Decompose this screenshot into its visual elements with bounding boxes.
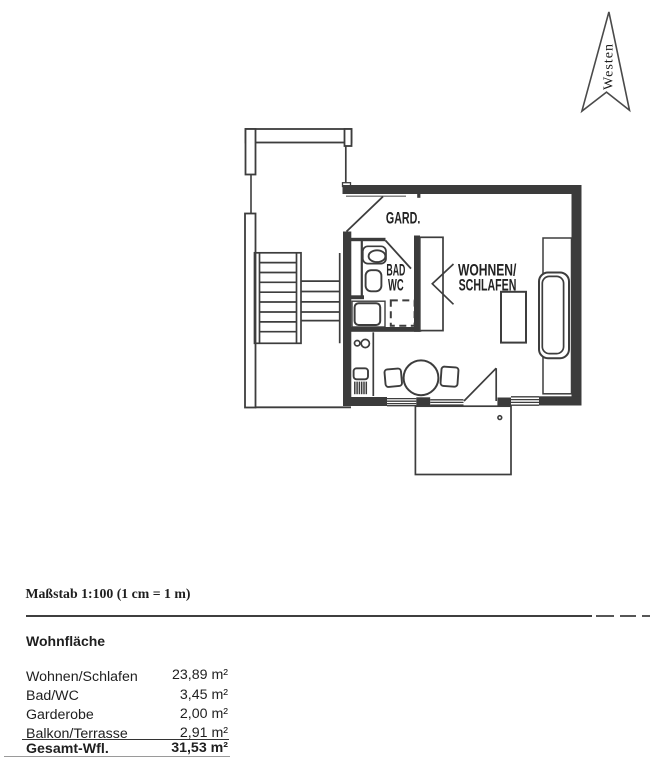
svg-text:Westen: Westen xyxy=(602,44,617,90)
svg-text:SCHLAFEN: SCHLAFEN xyxy=(459,275,517,294)
svg-text:WC: WC xyxy=(388,276,404,295)
svg-text:GARD.: GARD. xyxy=(386,208,420,227)
